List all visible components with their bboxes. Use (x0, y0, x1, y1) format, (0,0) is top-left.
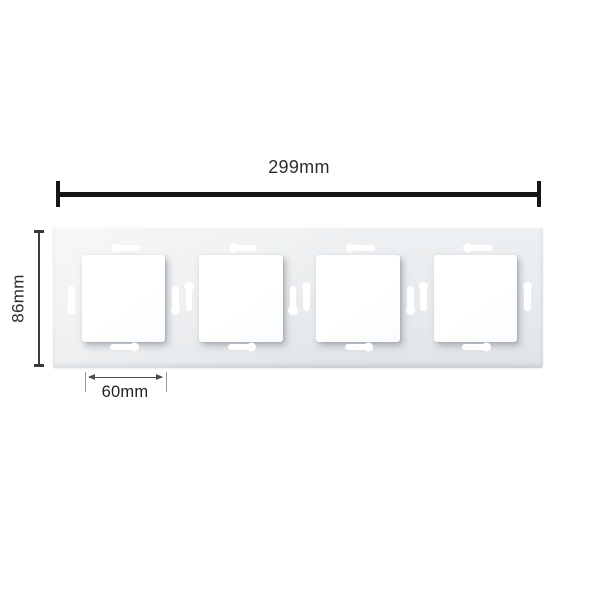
switch-module-4 (434, 227, 518, 368)
mounting-slot-right (172, 286, 179, 310)
mounting-slot-left (420, 287, 427, 311)
dimension-diagram: 299mm 86mm (0, 0, 600, 600)
mounting-slot-right (407, 286, 414, 310)
overall-width-end-cap-left (56, 181, 60, 207)
mounting-slot-top (351, 245, 375, 251)
mounting-slot-right (290, 286, 297, 310)
module-width-label: 60mm (85, 383, 166, 402)
overall-height-end-cap-bottom (34, 364, 44, 367)
mounting-slot-right (524, 287, 531, 311)
mounting-slot-bottom (462, 344, 486, 350)
mounting-slot-top (468, 245, 492, 251)
mounting-slot-left (303, 287, 310, 311)
switch-button (434, 255, 518, 342)
overall-height-end-cap-top (34, 230, 44, 233)
mounting-slot-bottom (228, 344, 252, 350)
frame-panel (53, 227, 543, 368)
switch-button (316, 255, 400, 342)
overall-width-end-cap-right (537, 181, 541, 207)
switch-module-2 (199, 227, 283, 368)
switch-button (82, 255, 166, 342)
mounting-slot-top (116, 245, 140, 251)
mounting-slot-left (68, 286, 75, 310)
mounting-slot-left (186, 287, 193, 311)
overall-width-label: 299mm (58, 157, 540, 178)
mounting-slot-top (233, 245, 257, 251)
mounting-slot-bottom (345, 344, 369, 350)
overall-width-dimension-line (58, 192, 540, 197)
switch-module-1 (82, 227, 166, 368)
overall-height-label: 86mm (9, 259, 30, 339)
mounting-slot-bottom (110, 344, 134, 350)
switch-button (199, 255, 283, 342)
switch-module-3 (316, 227, 400, 368)
overall-height-dimension-line (38, 230, 41, 367)
module-width-tick-right (166, 372, 167, 392)
module-width-arrow (89, 377, 162, 378)
